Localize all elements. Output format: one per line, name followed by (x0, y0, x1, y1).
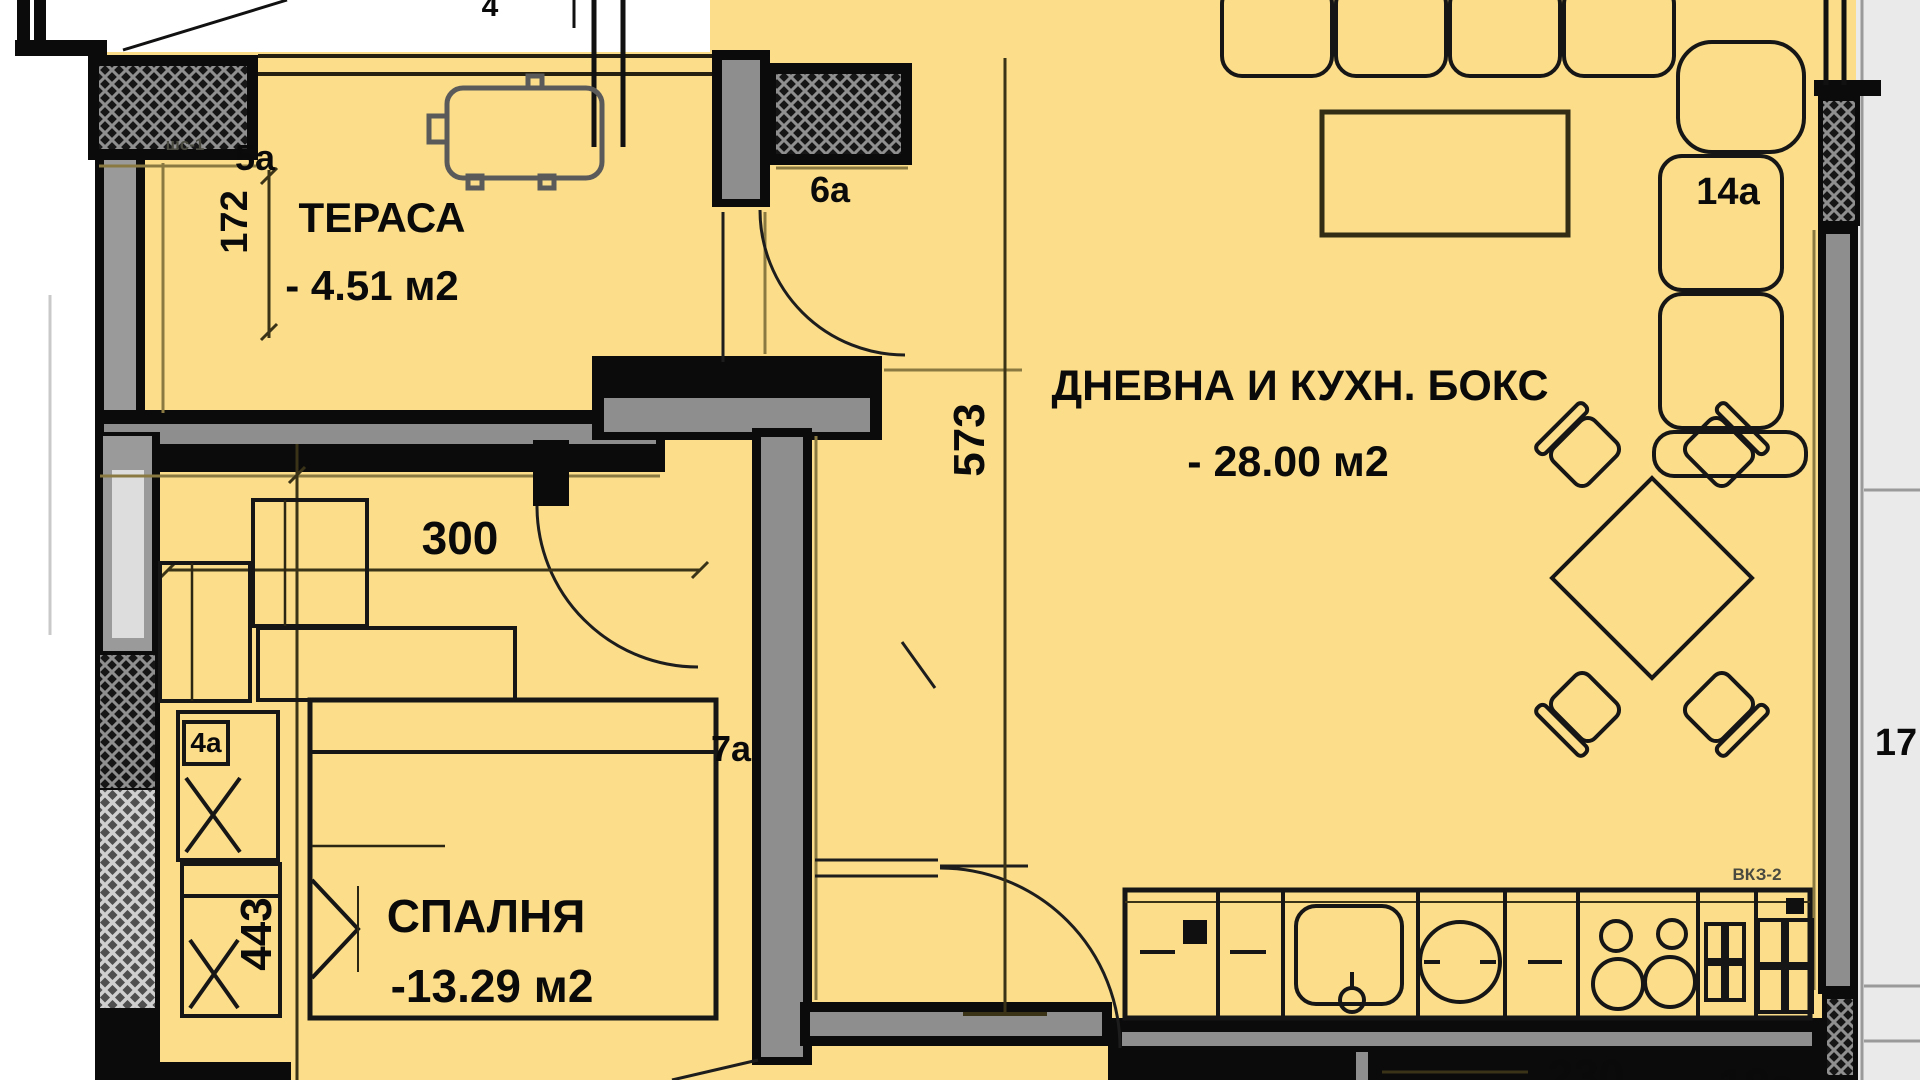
dim-bedroom-depth: 443 (232, 897, 281, 970)
left-outside-strip (0, 0, 95, 1080)
tag-4a: 4а (190, 727, 222, 758)
hall-south-wall-core (810, 1012, 1102, 1036)
bedroom-name-label: СПАЛНЯ (387, 890, 586, 942)
neighbour-wall-3 (15, 40, 107, 56)
living-name-label: ДНЕВНА И КУХН. БОКС (1051, 362, 1548, 410)
floorplan-canvas: 172 300 443 573 230 (0, 0, 1920, 1080)
right-outside-strip (1856, 0, 1920, 1080)
central-junction-core (604, 398, 870, 432)
neighbour-wall-1 (17, 0, 30, 42)
left-wall-window-strip (112, 470, 144, 638)
neighbour-wall-2 (34, 0, 46, 42)
bottom-wall-stub-core (1356, 1052, 1368, 1080)
cabinet-knob (1183, 920, 1207, 944)
background (0, 0, 1920, 1080)
right-wall-core (1826, 234, 1850, 986)
dim-bottom-offset: 230 (1548, 1050, 1625, 1080)
tag-shs: шс-1 (166, 135, 205, 154)
tag-18a: 18а (1719, 1059, 1796, 1080)
top-middle-block-hatch (776, 74, 901, 154)
terrace-area-label: - 4.51 м2 (285, 262, 459, 309)
tag-5a: 5а (235, 137, 276, 178)
right-top-window-hatch (1823, 101, 1855, 221)
tag-6a: 6а (810, 169, 851, 210)
bedroom-area-label: -13.29 м2 (391, 960, 594, 1012)
bottom-left-wall-bar (131, 1062, 291, 1080)
central-wall-core (761, 437, 803, 1057)
terrace-west-wall-core (104, 160, 136, 415)
floorplan-svg: 172 300 443 573 230 (0, 0, 1920, 1080)
tag-7a: 7а (711, 728, 752, 769)
bottom-wall-core (1122, 1032, 1812, 1046)
floor-fill (0, 0, 1920, 1080)
tag-top-partial: 4 (482, 0, 499, 23)
counter-corner-mark (1786, 898, 1804, 914)
dim-terrace-depth: 172 (214, 190, 256, 253)
tag-vkz: ВКЗ-2 (1732, 865, 1781, 884)
tag-14a: 14а (1696, 171, 1760, 213)
tag-17: 17 (1875, 722, 1917, 764)
right-bottom-window-hatch (1827, 999, 1853, 1075)
terrace-east-wall-core (722, 60, 760, 199)
dim-bedroom-width: 300 (422, 512, 499, 564)
door-7a-jamb (533, 440, 569, 506)
terrace-south-wall-core (104, 424, 656, 444)
living-area-label: - 28.00 м2 (1187, 438, 1389, 486)
left-wall-window-hatch-light (100, 790, 155, 1008)
left-wall-window-hatch-dark (100, 655, 155, 788)
terrace-name-label: ТЕРАСА (299, 194, 466, 241)
dim-living-depth: 573 (945, 403, 994, 476)
